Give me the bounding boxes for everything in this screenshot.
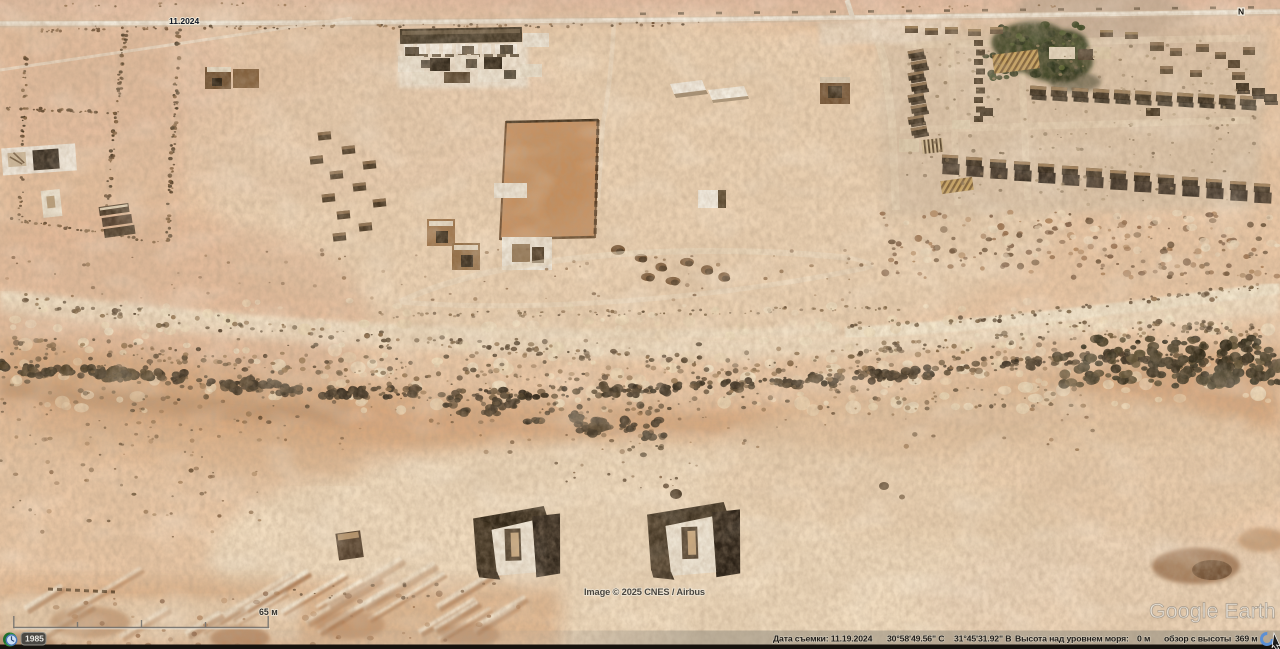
svg-text:Image © 2025 CNES / Airbus: Image © 2025 CNES / Airbus [584, 587, 705, 597]
svg-text:1985: 1985 [25, 634, 44, 644]
svg-text:369 м: 369 м [1235, 634, 1258, 644]
svg-text:Google Earth: Google Earth [1149, 599, 1276, 623]
svg-text:30°58'49.56" С: 30°58'49.56" С [887, 634, 945, 644]
svg-text:N: N [1238, 7, 1244, 17]
svg-text:11.2024: 11.2024 [169, 16, 200, 26]
svg-text:Дата съемки: 11.19.2024: Дата съемки: 11.19.2024 [773, 634, 873, 644]
svg-text:Высота над уровнем моря:: Высота над уровнем моря: [1015, 634, 1129, 644]
svg-text:0 м: 0 м [1137, 634, 1150, 644]
svg-text:обзор с высоты: обзор с высоты [1164, 634, 1231, 644]
svg-text:31°45'31.92" В: 31°45'31.92" В [954, 634, 1011, 644]
svg-text:65 м: 65 м [259, 607, 278, 617]
